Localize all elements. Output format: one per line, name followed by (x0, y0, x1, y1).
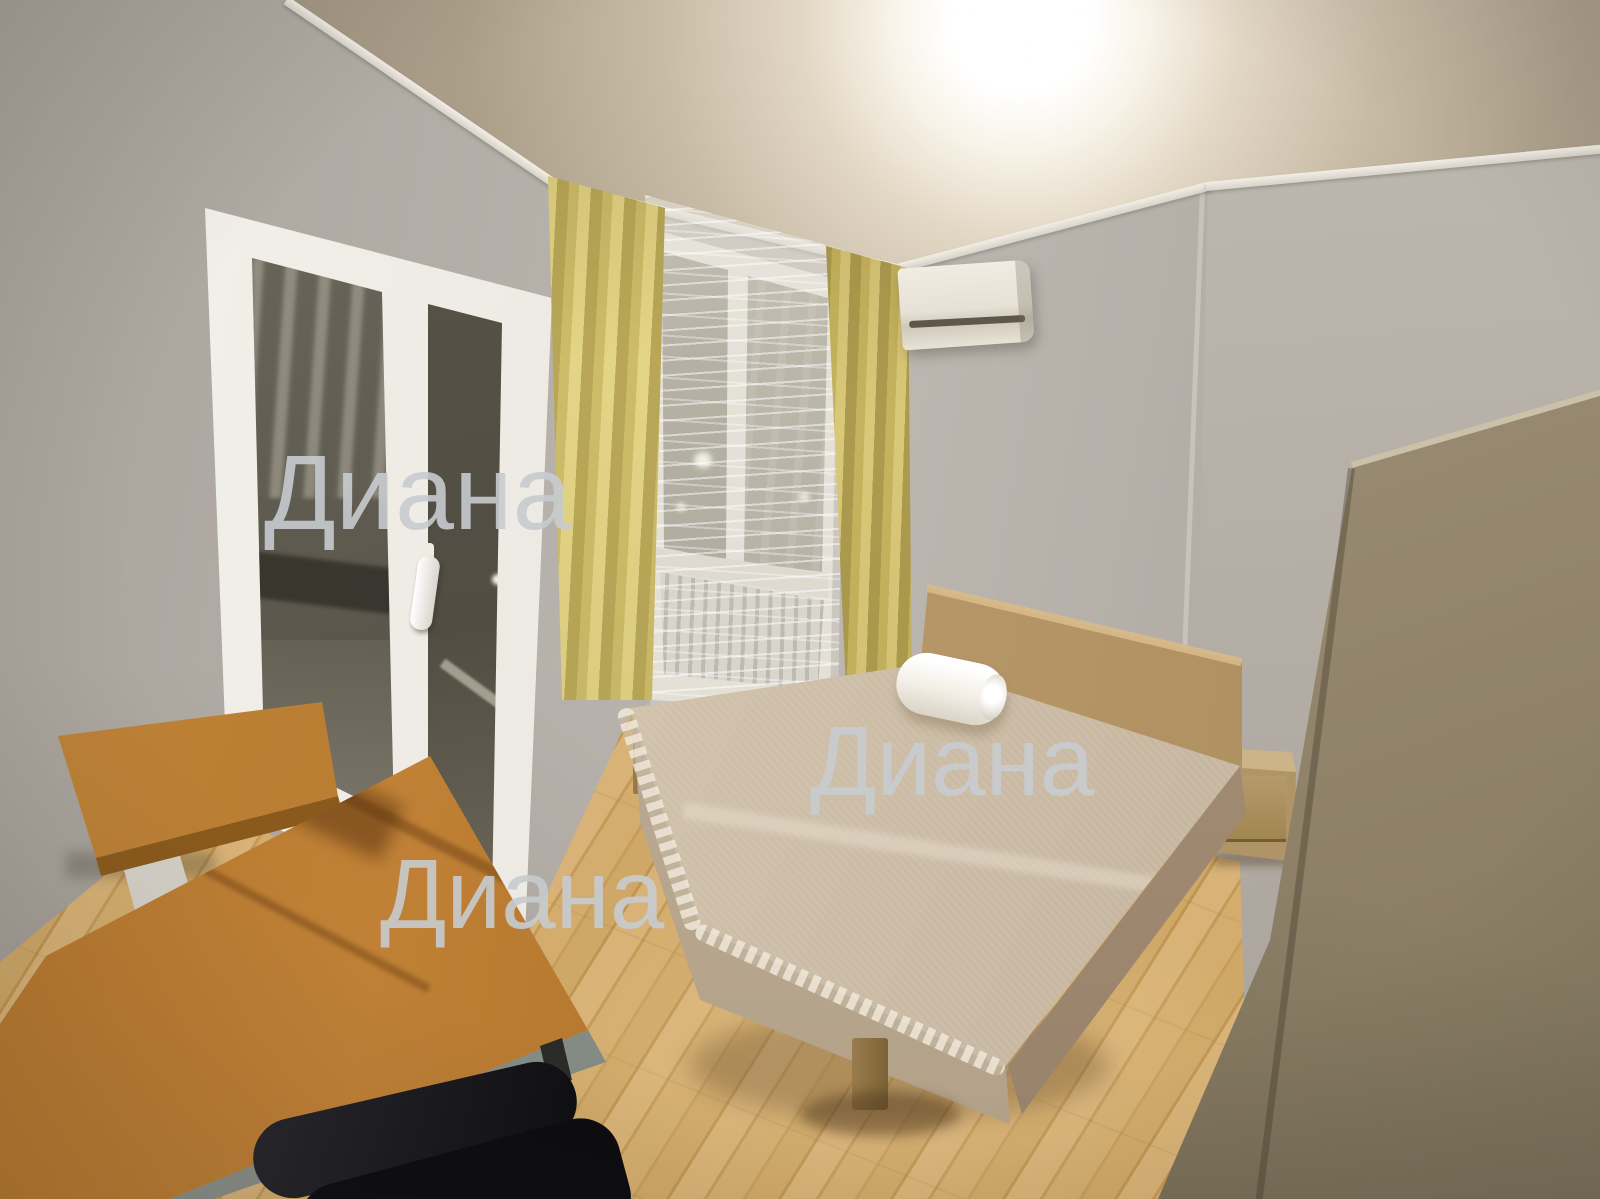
bed-leg-shadow (800, 1092, 960, 1136)
glass-reflection-rail (250, 551, 400, 614)
air-conditioner (897, 259, 1034, 350)
watermark-text: Диана (380, 845, 664, 943)
bedroom-photo: Диана Диана Диана (0, 0, 1600, 1199)
watermark-text: Диана (264, 440, 571, 546)
ac-vent-slot (909, 315, 1025, 328)
watermark-text: Диана (810, 712, 1094, 810)
